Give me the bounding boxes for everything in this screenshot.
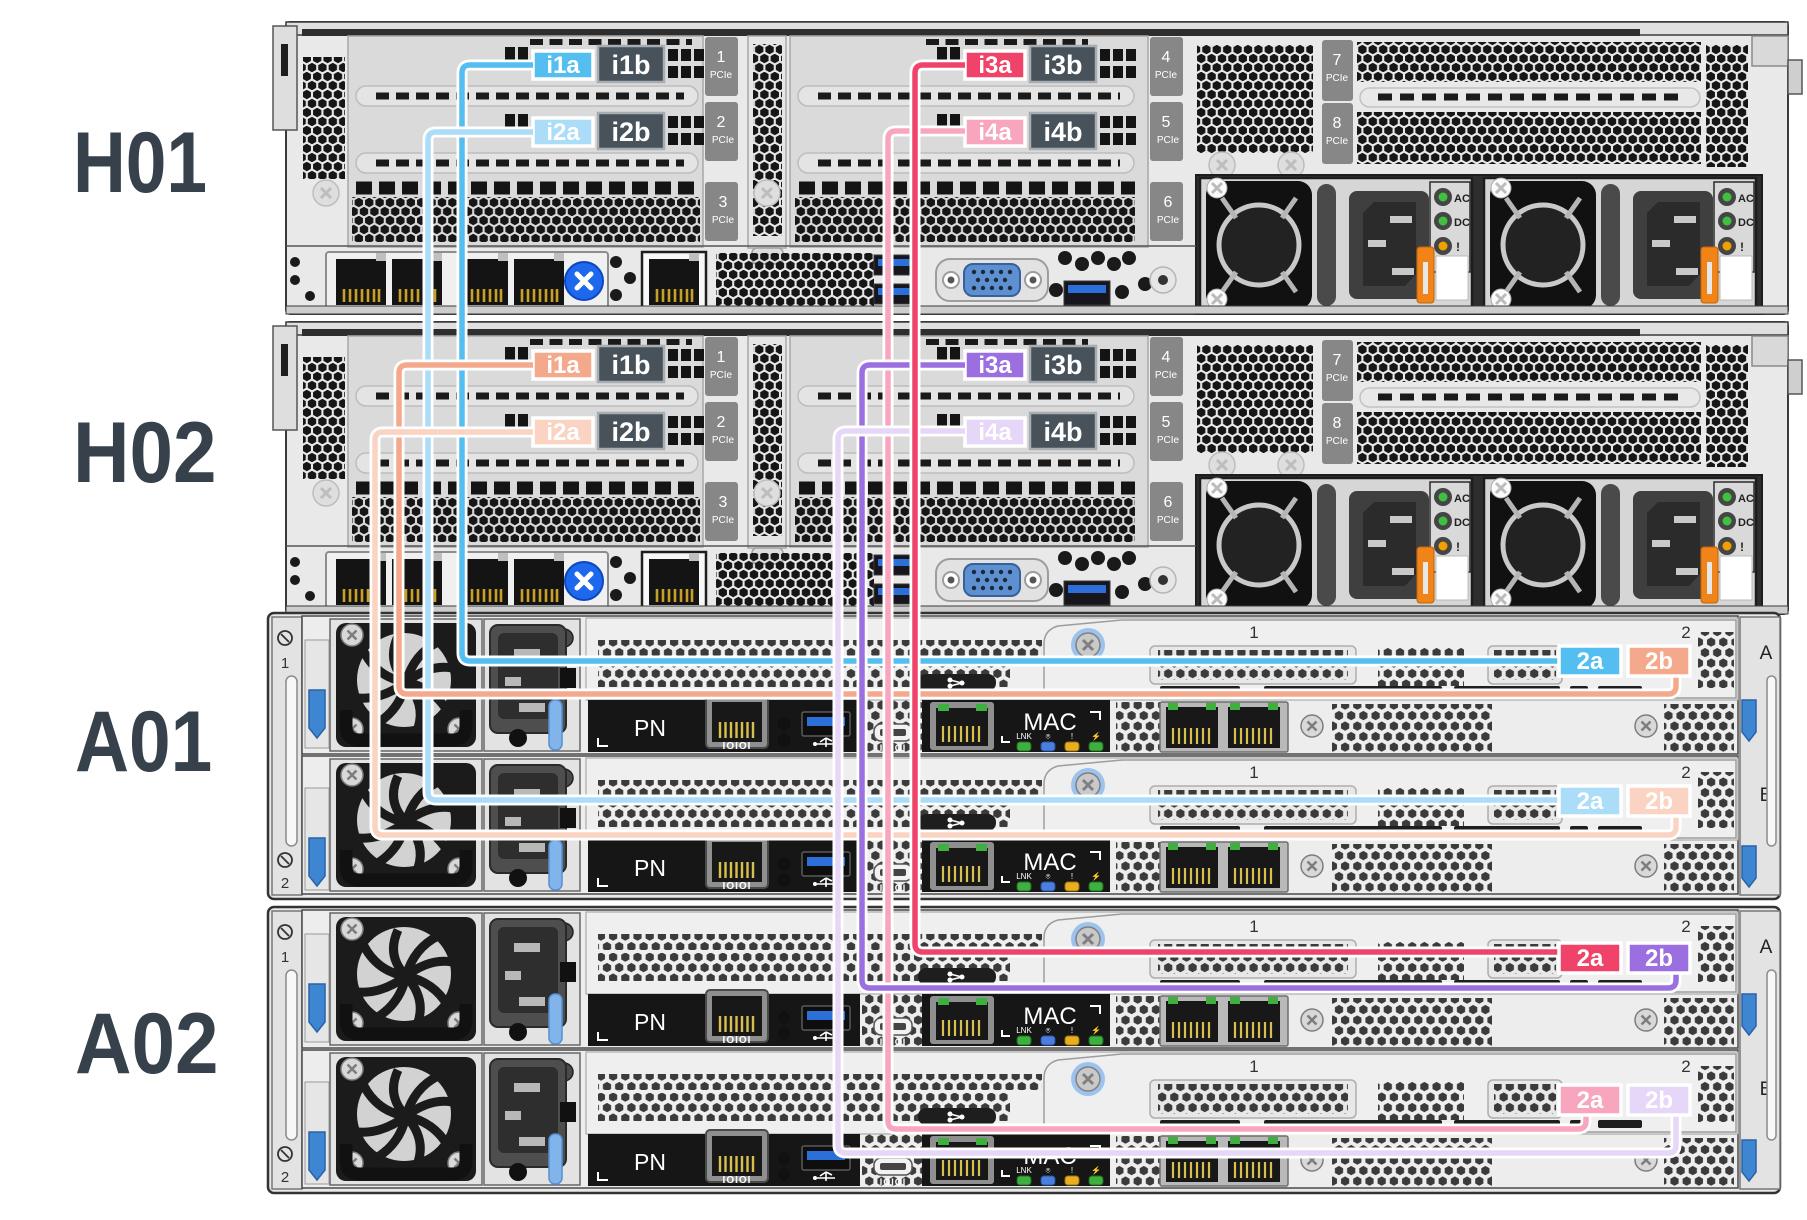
svg-text:A02: A02	[75, 997, 219, 1092]
svg-text:2b: 2b	[1645, 945, 1673, 972]
svg-text:H01: H01	[73, 114, 207, 210]
svg-text:2a: 2a	[1577, 945, 1604, 972]
svg-text:i1a: i1a	[546, 352, 580, 379]
svg-text:i2a: i2a	[546, 119, 580, 146]
svg-text:i3a: i3a	[978, 352, 1012, 379]
svg-text:2b: 2b	[1645, 788, 1673, 815]
svg-text:2a: 2a	[1577, 788, 1604, 815]
svg-text:H02: H02	[73, 406, 217, 501]
svg-text:A01: A01	[75, 694, 212, 790]
svg-text:2a: 2a	[1577, 648, 1604, 675]
svg-text:2b: 2b	[1645, 648, 1673, 675]
svg-text:i4a: i4a	[978, 119, 1012, 146]
svg-text:i1a: i1a	[546, 52, 580, 79]
svg-text:2b: 2b	[1645, 1087, 1673, 1114]
svg-text:i2a: i2a	[546, 419, 580, 446]
svg-text:2a: 2a	[1577, 1087, 1604, 1114]
svg-text:i4a: i4a	[978, 419, 1012, 446]
svg-text:i3a: i3a	[978, 52, 1012, 79]
